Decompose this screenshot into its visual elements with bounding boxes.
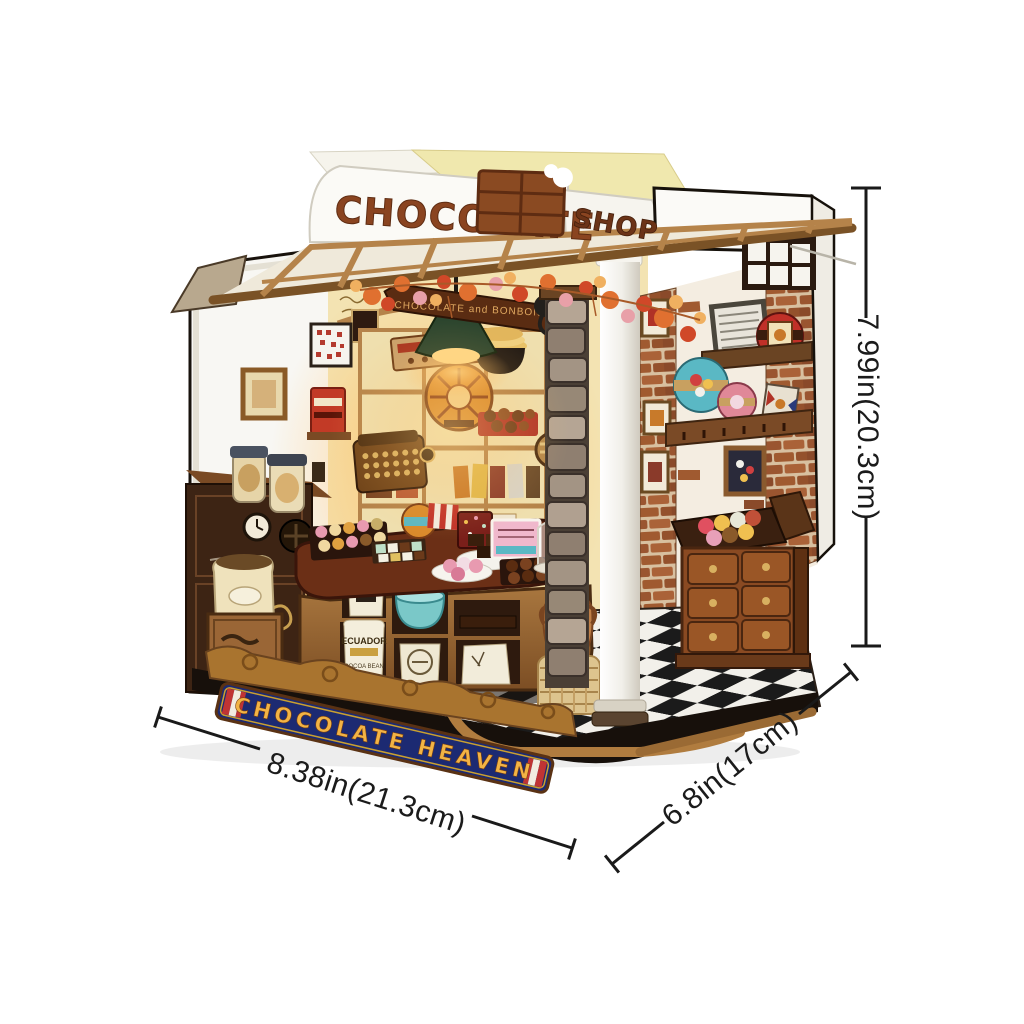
chest-of-drawers [672,492,814,668]
interior-glow [330,320,570,540]
drawers [688,552,790,652]
jar-right [267,454,307,512]
petit-four-tray [371,538,426,564]
wall-slot [312,462,325,482]
height-dimension-label: 7.99in(20.3cm) [851,313,884,520]
jar-left [230,446,268,502]
height-dimension-annotation: 7.99in(20.3cm) [851,188,884,646]
chocolate-slab [460,616,516,628]
white-column [592,252,648,726]
stamp-sack [400,644,440,684]
width-right-cap [569,839,576,860]
flower-frame [726,448,764,494]
depth-right-cap [844,663,858,680]
sack-origin-label: ECUADOR [341,636,387,646]
plain-sack [462,644,510,684]
chocolate-bar-icon [477,162,573,236]
product-dimension-image: CHOCOLATE and BONBONS [0,0,1024,1024]
lattice-panel [742,236,816,290]
miniature-house-illustration: CHOCOLATE and BONBONS [0,0,1024,1024]
qr-pattern-art [311,324,351,366]
left-eave [172,256,246,312]
